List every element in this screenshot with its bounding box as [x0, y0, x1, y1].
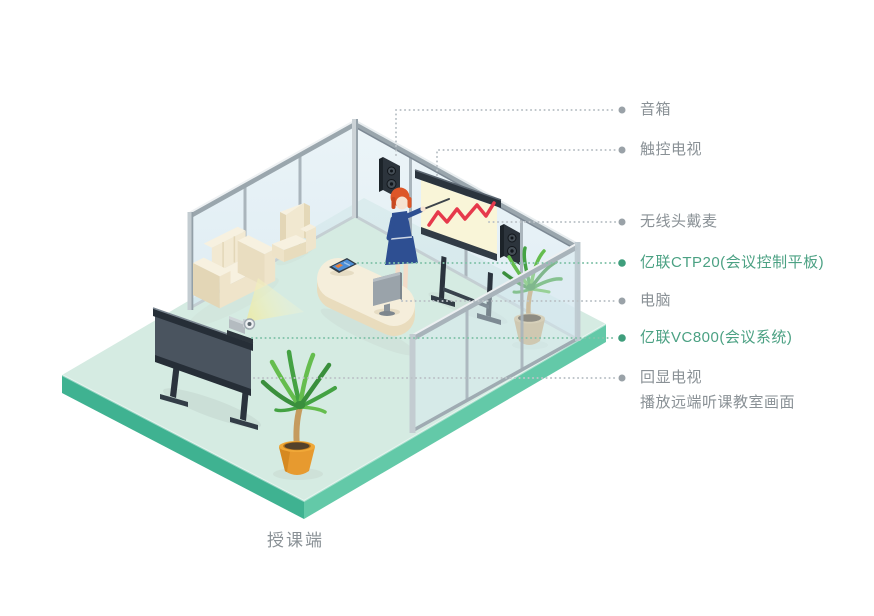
label-echo-tv-title: 回显电视 [640, 369, 702, 386]
leader-dots [618, 107, 626, 382]
caption-teaching-side: 授课端 [267, 526, 324, 551]
label-echo-tv: 回显电视 播放远端听课教室画面 [640, 369, 795, 412]
leader-speaker [396, 110, 616, 155]
teacher-face [396, 197, 408, 210]
classroom-illustration [0, 0, 874, 616]
label-yealink-ctp20: 亿联CTP20(会议控制平板) [640, 254, 824, 272]
label-speaker: 音箱 [640, 101, 671, 119]
leader-touch-tv [437, 150, 616, 175]
label-computer: 电脑 [640, 292, 671, 310]
label-touch-tv: 触控电视 [640, 141, 702, 159]
label-yealink-vc800: 亿联VC800(会议系统) [640, 329, 792, 347]
label-wireless-headset-mic: 无线头戴麦 [640, 213, 718, 231]
page: 音箱 触控电视 无线头戴麦 亿联CTP20(会议控制平板) 电脑 亿联VC800… [0, 0, 874, 616]
label-echo-tv-sub: 播放远端听课教室画面 [640, 394, 795, 412]
